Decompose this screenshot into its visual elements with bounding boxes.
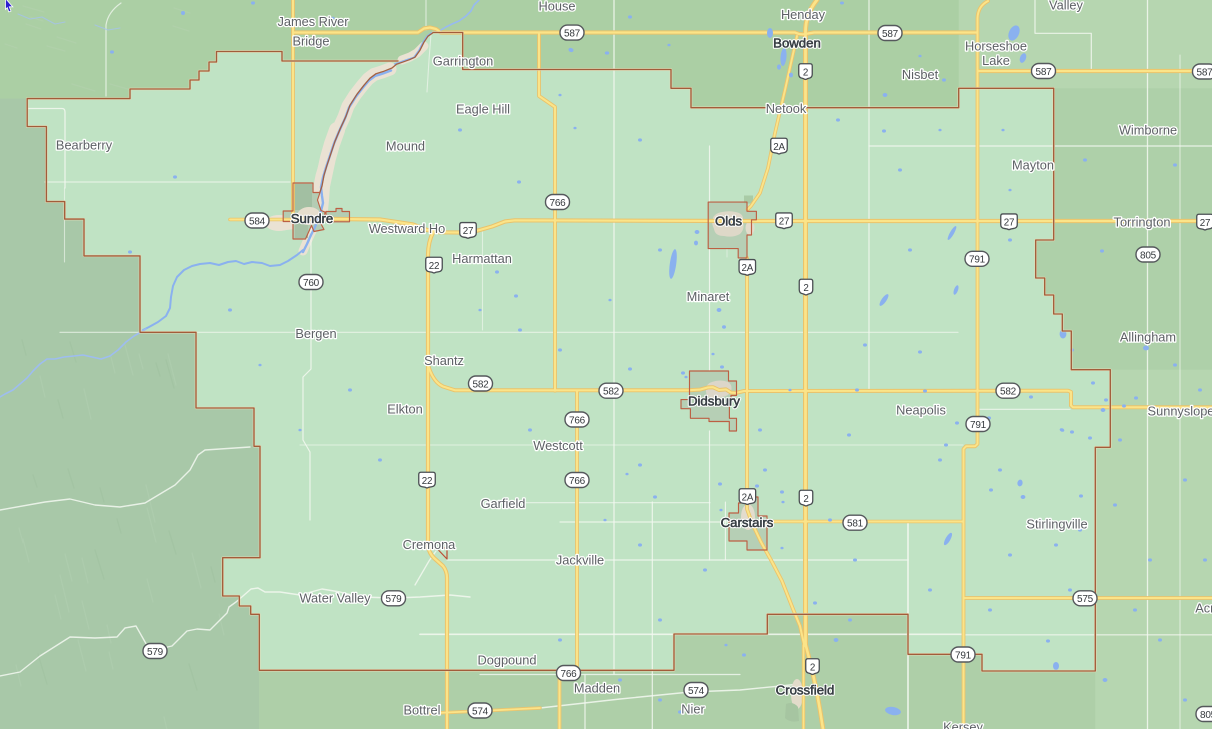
svg-text:27: 27	[463, 226, 474, 237]
svg-text:791: 791	[955, 650, 972, 661]
svg-text:House: House	[539, 0, 576, 14]
svg-text:574: 574	[472, 706, 489, 717]
svg-text:Shantz: Shantz	[424, 353, 464, 368]
svg-text:Bergen: Bergen	[295, 326, 336, 341]
svg-text:Westcott: Westcott	[533, 438, 583, 453]
svg-text:805: 805	[1140, 250, 1157, 261]
svg-text:Mayton: Mayton	[1012, 157, 1054, 172]
svg-text:766: 766	[550, 198, 567, 209]
svg-text:Bridge: Bridge	[293, 34, 330, 49]
svg-text:579: 579	[147, 647, 164, 658]
svg-text:Westward Ho: Westward Ho	[369, 221, 446, 236]
svg-text:2: 2	[803, 283, 808, 294]
svg-text:Valley: Valley	[1049, 0, 1084, 13]
svg-text:2: 2	[810, 662, 815, 673]
svg-text:Bowden: Bowden	[773, 35, 821, 50]
svg-text:Water Valley: Water Valley	[299, 590, 371, 605]
svg-text:2A: 2A	[742, 492, 754, 503]
svg-text:Nier: Nier	[681, 701, 705, 716]
svg-text:Stirlingville: Stirlingville	[1026, 516, 1087, 531]
svg-text:Wimborne: Wimborne	[1119, 123, 1177, 138]
svg-text:Eagle Hill: Eagle Hill	[456, 101, 510, 116]
svg-text:James River: James River	[277, 14, 349, 29]
svg-text:766: 766	[561, 669, 578, 680]
svg-text:766: 766	[569, 476, 586, 487]
svg-text:574: 574	[688, 686, 705, 697]
svg-text:805: 805	[1200, 710, 1212, 721]
svg-text:27: 27	[1200, 218, 1211, 229]
svg-text:791: 791	[969, 255, 986, 266]
svg-text:Acm: Acm	[1195, 600, 1212, 615]
svg-text:Kersey: Kersey	[943, 720, 983, 729]
svg-text:Elkton: Elkton	[387, 402, 423, 417]
svg-text:Garfield: Garfield	[481, 496, 526, 511]
svg-text:587: 587	[1197, 67, 1212, 78]
svg-text:2: 2	[803, 67, 808, 78]
svg-text:Henday: Henday	[781, 7, 826, 22]
svg-text:Dogpound: Dogpound	[477, 652, 536, 667]
svg-text:581: 581	[847, 519, 864, 530]
svg-text:579: 579	[386, 594, 403, 605]
svg-text:Olds: Olds	[715, 213, 743, 228]
svg-text:587: 587	[564, 28, 581, 39]
svg-text:791: 791	[970, 420, 987, 431]
svg-text:587: 587	[1036, 67, 1053, 78]
svg-text:582: 582	[473, 379, 490, 390]
svg-text:22: 22	[429, 261, 440, 272]
svg-text:766: 766	[569, 415, 586, 426]
svg-text:Netook: Netook	[766, 101, 807, 116]
svg-text:Cremona: Cremona	[403, 537, 457, 552]
svg-text:582: 582	[1000, 387, 1017, 398]
svg-text:27: 27	[779, 217, 790, 228]
svg-text:584: 584	[249, 216, 266, 227]
svg-text:Harmattan: Harmattan	[452, 251, 512, 266]
svg-text:Jackville: Jackville	[556, 552, 604, 567]
svg-text:Mound: Mound	[386, 139, 425, 154]
svg-text:22: 22	[422, 476, 433, 487]
svg-text:Crossfield: Crossfield	[776, 683, 835, 698]
svg-text:Allingham: Allingham	[1120, 330, 1176, 345]
svg-text:587: 587	[882, 29, 899, 40]
svg-text:Lake: Lake	[982, 53, 1010, 68]
svg-text:Sunnyslope: Sunnyslope	[1148, 403, 1212, 418]
svg-text:582: 582	[603, 387, 620, 398]
svg-text:Torrington: Torrington	[1114, 215, 1171, 230]
svg-text:2A: 2A	[773, 142, 785, 153]
svg-text:Minaret: Minaret	[687, 289, 730, 304]
svg-text:Nisbet: Nisbet	[902, 67, 939, 82]
svg-text:Garrington: Garrington	[433, 54, 493, 69]
svg-text:2: 2	[803, 494, 808, 505]
svg-text:Bottrel: Bottrel	[404, 703, 441, 718]
svg-text:Bearberry: Bearberry	[56, 138, 113, 153]
svg-text:Horseshoe: Horseshoe	[965, 38, 1027, 53]
svg-text:2A: 2A	[742, 263, 754, 274]
svg-text:575: 575	[1077, 594, 1094, 605]
svg-text:27: 27	[1004, 218, 1015, 229]
svg-text:Madden: Madden	[574, 680, 620, 695]
svg-text:Carstairs: Carstairs	[721, 515, 774, 530]
svg-text:Neapolis: Neapolis	[896, 402, 946, 417]
svg-text:Didsbury: Didsbury	[688, 393, 740, 408]
svg-text:760: 760	[303, 278, 320, 289]
svg-text:Sundre: Sundre	[291, 211, 334, 226]
